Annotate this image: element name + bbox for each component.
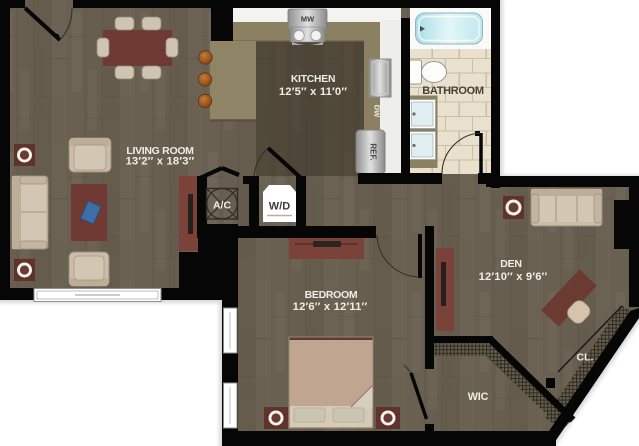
svg-text:13′2′′ x 18′3′′: 13′2′′ x 18′3′′: [126, 156, 195, 168]
svg-text:CL.: CL.: [577, 352, 594, 364]
svg-text:12′5′′ x 11′0′′: 12′5′′ x 11′0′′: [279, 86, 347, 98]
svg-text:W/D: W/D: [269, 201, 290, 213]
svg-text:WIC: WIC: [468, 391, 489, 403]
svg-text:DW: DW: [373, 105, 382, 118]
svg-text:BEDROOM: BEDROOM: [305, 289, 358, 301]
svg-text:KITCHEN: KITCHEN: [291, 74, 335, 85]
svg-text:12′10′′ x 9′6′′: 12′10′′ x 9′6′′: [479, 271, 548, 283]
svg-text:REF.: REF.: [369, 143, 378, 160]
svg-text:BATHROOM: BATHROOM: [422, 85, 484, 97]
svg-text:12′6′′ x 12′11′′: 12′6′′ x 12′11′′: [293, 301, 368, 313]
svg-text:A/C: A/C: [213, 200, 232, 212]
svg-text:DEN: DEN: [500, 258, 522, 270]
svg-text:MW: MW: [301, 15, 315, 24]
